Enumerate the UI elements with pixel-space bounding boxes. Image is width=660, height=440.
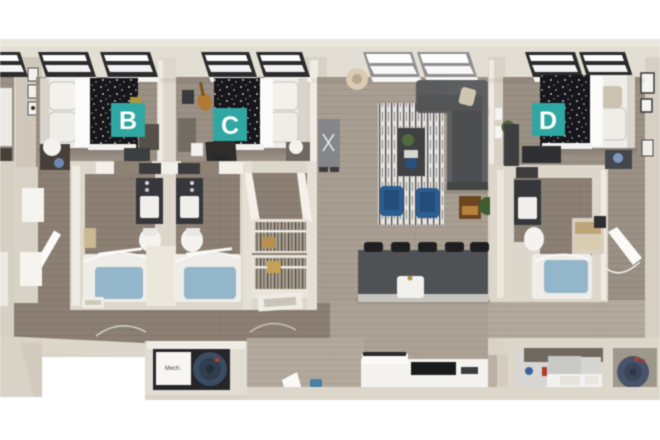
svg-text:C: C [221,112,239,140]
svg-text:B: B [119,107,137,135]
svg-text:Mech.: Mech. [165,366,182,372]
svg-text:D: D [539,107,557,135]
